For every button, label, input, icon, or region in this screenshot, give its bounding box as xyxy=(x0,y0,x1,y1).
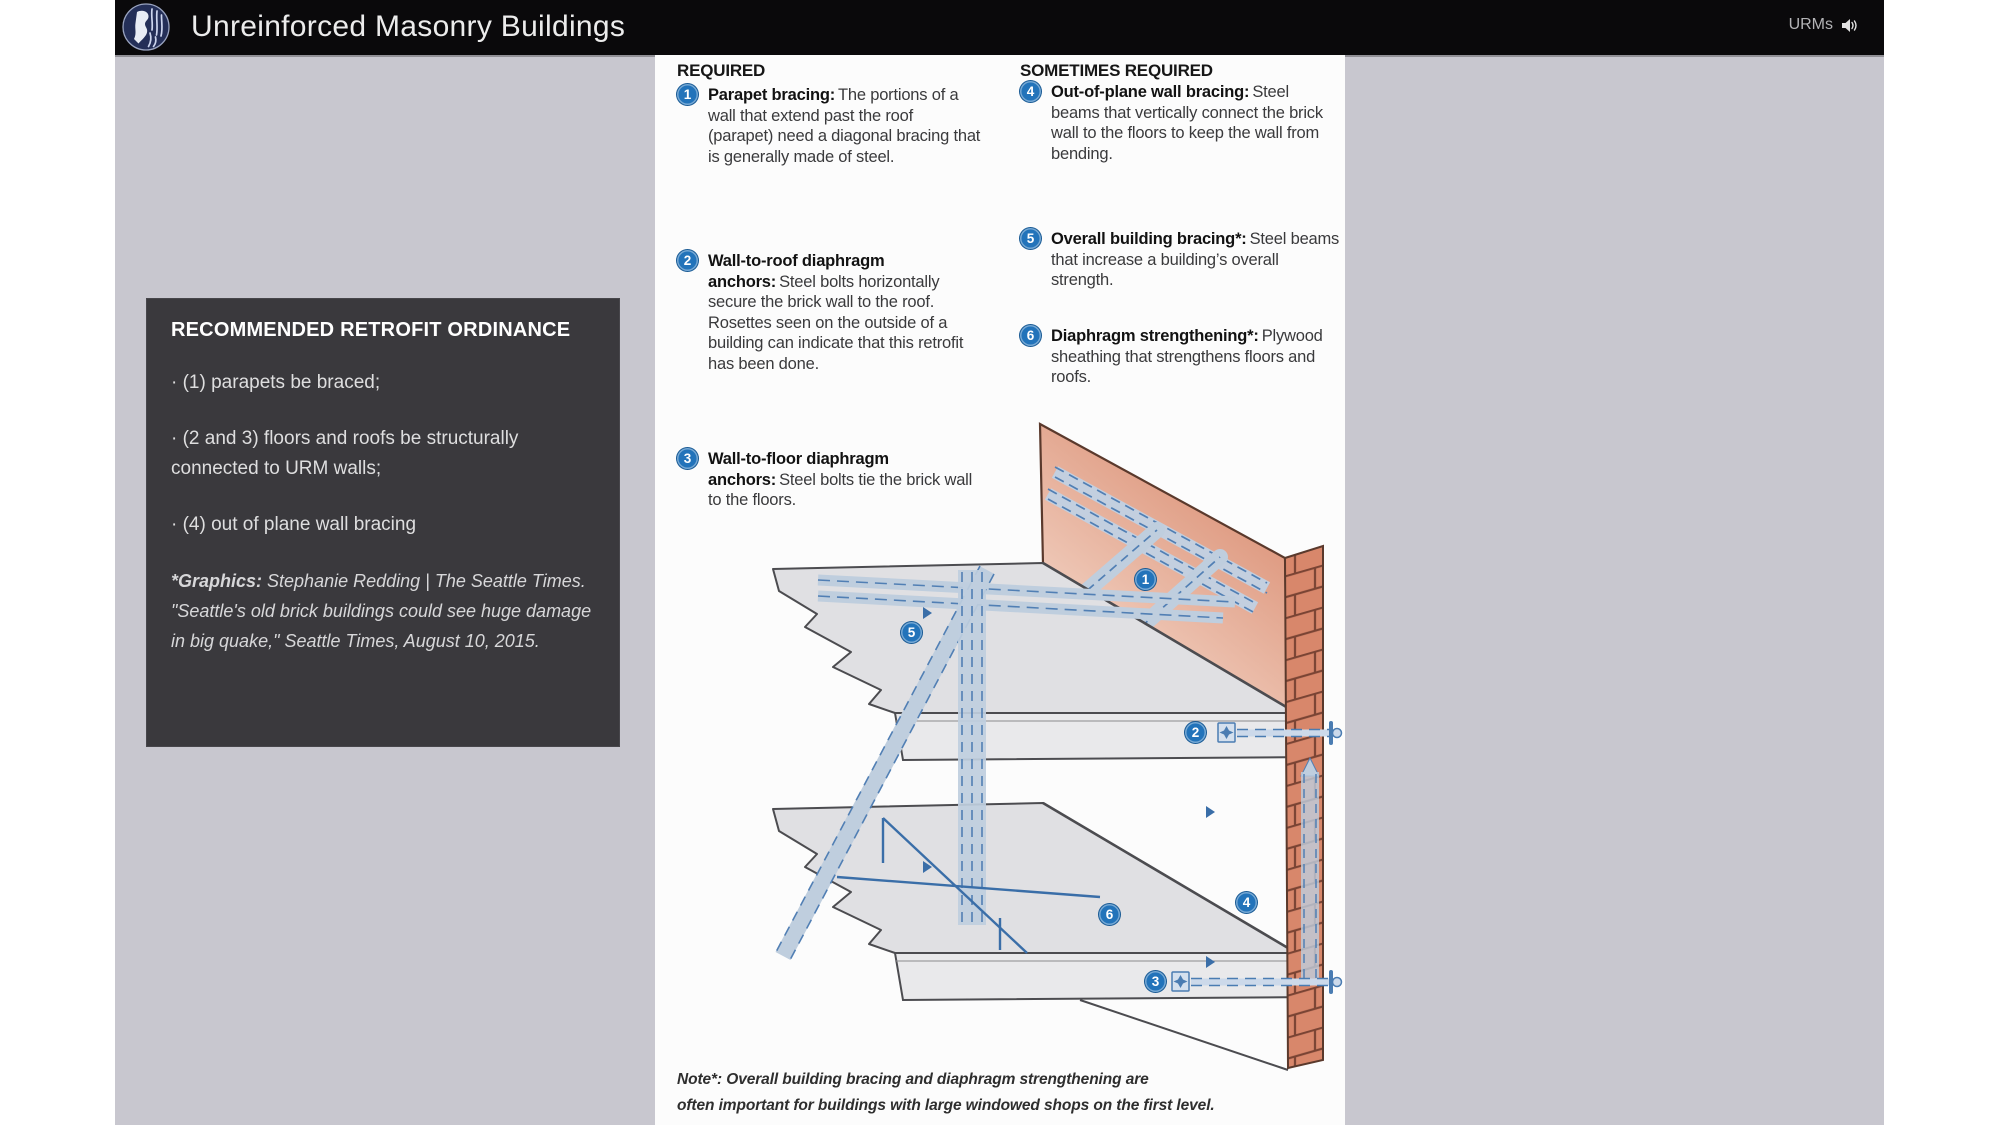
legend-item-parapet-bracing: 1 Parapet bracing:The portions of a wall… xyxy=(677,84,982,167)
ordinance-bullet-2: · (2 and 3) floors and roofs be structur… xyxy=(171,424,595,484)
legend-item-diaphragm-strengthening: 6 Diaphragm strengthening*:Plywood sheat… xyxy=(1020,325,1340,388)
callout-4-out-of-plane: 4 xyxy=(1236,892,1257,913)
callout-badge-6: 6 xyxy=(1020,325,1041,346)
callout-5-building-brace: 5 xyxy=(901,622,922,643)
legend-item-out-of-plane-bracing: 4 Out-of-plane wall bracing:Steel beams … xyxy=(1020,81,1340,164)
nav-link-urms[interactable]: URMs xyxy=(1789,16,1833,34)
page-title: Unreinforced Masonry Buildings xyxy=(191,10,625,44)
sometimes-required-heading: SOMETIMES REQUIRED xyxy=(1020,61,1213,81)
legend-item-wall-to-roof-anchors: 2 Wall-to-roof diaphragm anchors:Steel b… xyxy=(677,250,982,374)
legend-item-overall-building-bracing: 5 Overall building bracing*:Steel beams … xyxy=(1020,228,1340,291)
vertical-steel-column xyxy=(958,570,986,925)
content-area: Unreinforced Masonry Buildings URMs RECO… xyxy=(115,0,1884,1125)
callout-badge-1: 1 xyxy=(677,84,698,105)
header-bar: Unreinforced Masonry Buildings URMs xyxy=(115,0,1884,55)
callout-6-diaphragm: 6 xyxy=(1099,904,1120,925)
ordinance-bullet-3: · (4) out of plane wall bracing xyxy=(171,510,595,540)
callout-2-roof-anchor: 2 xyxy=(1185,722,1206,743)
speaker-icon[interactable] xyxy=(1841,18,1858,33)
graphics-credit: *Graphics: Stephanie Redding | The Seatt… xyxy=(171,566,595,656)
callout-badge-5: 5 xyxy=(1020,228,1041,249)
infographic-panel: REQUIRED SOMETIMES REQUIRED 1 Parapet br… xyxy=(655,55,1345,1125)
ground-edge xyxy=(1080,1000,1288,1070)
retrofit-illustration xyxy=(655,420,1345,1080)
floor-fascia xyxy=(895,953,1315,1000)
callout-badge-2: 2 xyxy=(677,250,698,271)
callout-badge-4: 4 xyxy=(1020,81,1041,102)
callout-1-parapet: 1 xyxy=(1135,569,1156,590)
illustration-footnote: Note*: Overall building bracing and diap… xyxy=(677,1067,1257,1119)
required-heading: REQUIRED xyxy=(677,61,765,81)
seattle-logo-icon xyxy=(122,3,170,51)
out-of-plane-brace xyxy=(1301,758,1319,982)
info-box-heading: RECOMMENDED RETROFIT ORDINANCE xyxy=(171,319,595,342)
callout-3-floor-anchor: 3 xyxy=(1145,971,1166,992)
ordinance-bullet-1: · (1) parapets be braced; xyxy=(171,368,595,398)
retrofit-ordinance-box: RECOMMENDED RETROFIT ORDINANCE · (1) par… xyxy=(146,298,620,747)
